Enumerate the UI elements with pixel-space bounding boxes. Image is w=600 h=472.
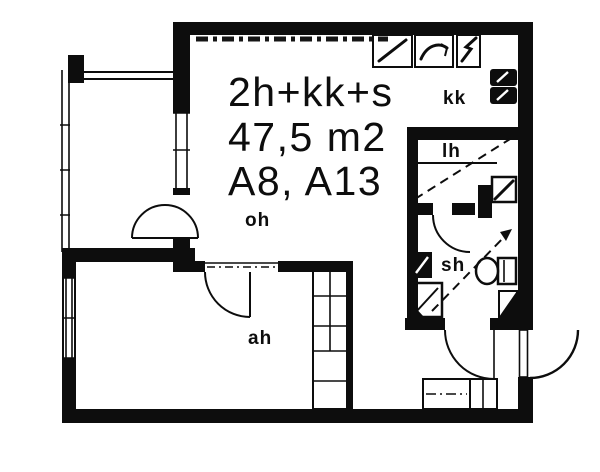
bathroom-bottom-wall-left: [405, 318, 445, 330]
dishwasher-glyph-icon: [421, 45, 447, 59]
apartment-area-text: 47,5 m2: [228, 114, 387, 160]
kitchenette-label: kk: [443, 88, 466, 109]
floor-plan-drawing: oh kk lh: [0, 0, 600, 472]
sauna-bottom-wall-right: [452, 203, 475, 215]
fridge-glyph-icon: [462, 38, 476, 61]
sauna-corner-wall: [478, 185, 492, 218]
bedroom-door-swing-arc-icon: [205, 272, 250, 317]
bedroom-label: ah: [248, 328, 272, 349]
corner-unit-fill-icon: [499, 291, 517, 317]
sauna-label: lh: [442, 141, 461, 162]
bathroom-door-swing-arc-icon: [445, 330, 494, 379]
apartment-title: 2h+kk+s 47,5 m2 A8, A13: [228, 69, 394, 204]
bathroom-label: sh: [441, 255, 465, 276]
entry-door-swing-arc-icon: [530, 330, 578, 378]
balcony-wall-stub: [173, 188, 190, 195]
sauna: lh: [407, 127, 533, 324]
bedroom-top-wall-left: [190, 261, 205, 272]
living-room-label: oh: [245, 210, 270, 231]
sauna-bottom-wall-left: [407, 203, 433, 215]
sauna-stove-glyph-icon: [495, 181, 513, 199]
toilet-tank-icon: [498, 258, 516, 284]
stove-glyph-icon: [379, 40, 406, 61]
kitchen-bottom-wall: [407, 127, 533, 140]
bathroom-bottom-wall-right: [490, 318, 533, 330]
sauna-door-swing-arc-icon: [433, 215, 470, 252]
balcony: [60, 22, 198, 272]
apartment-numbers-text: A8, A13: [228, 158, 382, 204]
entry-door-leaf: [520, 330, 528, 377]
balcony-wall-upper: [173, 22, 190, 113]
balcony-wall-lower: [173, 238, 190, 272]
wall-right-upper: [518, 22, 533, 330]
balcony-railing-top: [84, 72, 173, 79]
floor-plan: oh kk lh: [0, 0, 600, 472]
dishwasher-icon: [415, 35, 453, 67]
apartment-type-text: 2h+kk+s: [228, 69, 394, 115]
closet-grid-lines: [313, 271, 347, 381]
wall-top: [173, 22, 533, 35]
sauna-slope-dash-line: [415, 139, 510, 199]
balcony-pillar: [68, 55, 84, 83]
balcony-door-swing-arc-icon: [132, 205, 198, 238]
kitchenette: kk: [373, 35, 517, 109]
wall-bottom: [62, 409, 533, 423]
balcony-railing-left: [60, 70, 70, 252]
slope-arrow-icon: [500, 229, 512, 241]
bedroom: ah: [62, 261, 353, 409]
balcony-window-icon: [173, 113, 190, 188]
